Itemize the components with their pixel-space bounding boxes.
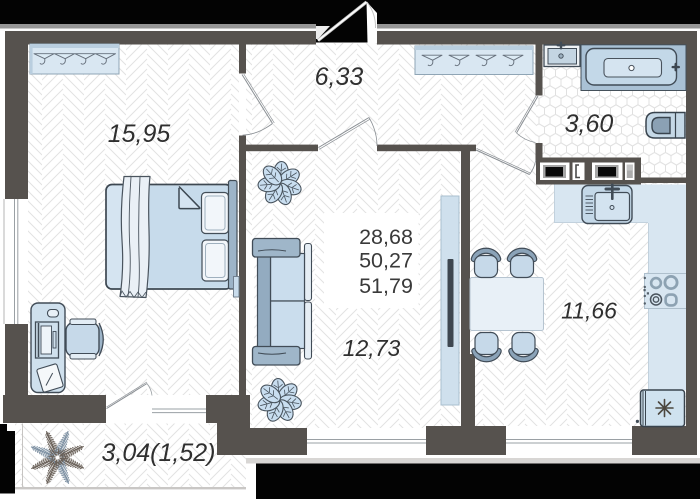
svg-text:50,27: 50,27 (359, 249, 413, 273)
svg-text:11,66: 11,66 (561, 298, 617, 324)
svg-text:3,60: 3,60 (565, 110, 614, 138)
svg-text:3,04(1,52): 3,04(1,52) (102, 439, 216, 467)
svg-text:28,68: 28,68 (359, 225, 413, 249)
svg-text:15,95: 15,95 (108, 120, 171, 148)
svg-text:51,79: 51,79 (359, 274, 413, 298)
svg-text:6,33: 6,33 (315, 63, 364, 91)
svg-text:12,73: 12,73 (343, 335, 401, 361)
